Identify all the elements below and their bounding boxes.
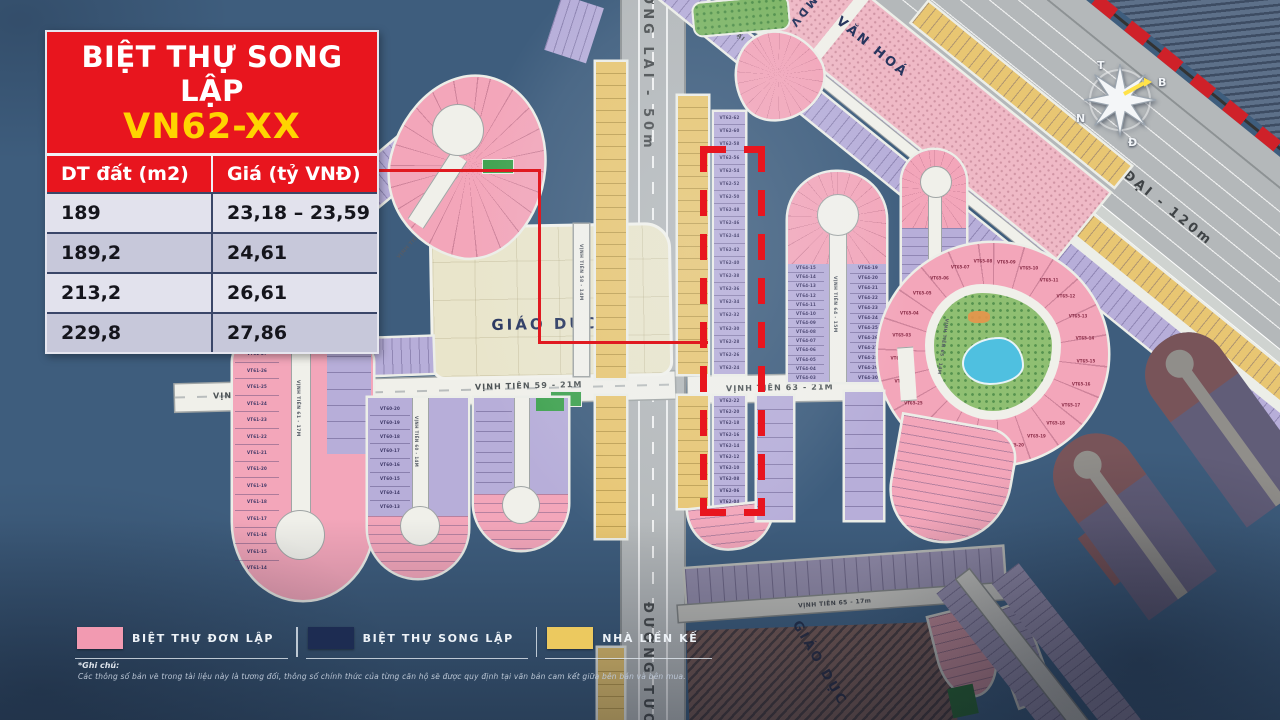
lot-cell [327, 389, 371, 405]
legend-item-song-lap: BIỆT THỰ SONG LẬP [306, 627, 528, 659]
compass-label-south: N [1076, 112, 1085, 125]
lot-cell [845, 420, 883, 434]
lot-strip-p3 [476, 402, 512, 492]
lot-cell: VT62-06 [714, 485, 745, 496]
lot-cell [327, 372, 371, 388]
lot-strip-vt61-crescent: VT61-28VT61-27VT61-26VT61-25VT61-24VT61-… [235, 330, 279, 576]
lot-cell [327, 421, 371, 437]
price-table-header: DT đất (m2) Giá (tỷ VNĐ) [47, 153, 377, 192]
lot-cell: VT62-24 [714, 361, 745, 374]
lot-cell [845, 448, 883, 462]
lot-cell [596, 366, 626, 378]
lot-cell: VT62-34 [714, 295, 745, 308]
highlight-rect-left [700, 146, 707, 516]
lot-cell [845, 463, 883, 477]
lot-cell: VT65-13 [1069, 313, 1088, 318]
lot-cell [596, 329, 626, 341]
lot-cell: VT62-44 [714, 229, 745, 242]
lot-cell [596, 317, 626, 329]
lot-cell: VT64-22 [850, 293, 886, 303]
lot-strip-tl-left-north [596, 62, 626, 378]
lot-cell: VT64-09 [788, 318, 824, 327]
lot-cell [596, 354, 626, 366]
table-row: 189 23,18 – 23,59 [47, 192, 377, 232]
lot-cell: VT64-24 [850, 313, 886, 323]
lot-cell [596, 478, 626, 490]
lot-cell: VT60-17 [370, 443, 410, 457]
lot-cell: VT65-04 [900, 310, 919, 315]
lot-cell: VT62-54 [714, 164, 745, 177]
legend-label: NHÀ LIỀN KẾ [602, 632, 698, 645]
culdesac-bulb-vt66 [920, 166, 952, 198]
highlight-rect-top [700, 146, 765, 153]
lot-cell: VT65-03 [892, 332, 911, 337]
lot-cell: VT64-03 [788, 373, 824, 382]
lot-cell [476, 462, 512, 472]
lot-cell [476, 482, 512, 492]
lot-cell [596, 396, 626, 407]
education-block-south: GIÁO DỤC [686, 621, 958, 720]
cell-price: 23,18 – 23,59 [211, 194, 377, 232]
lot-cell [678, 107, 708, 119]
cell-price: 27,86 [211, 314, 377, 352]
lot-cell: VT65-19 [1027, 434, 1046, 439]
lot-cell: VT62-10 [714, 462, 745, 473]
lot-cell: VT65-10 [1020, 265, 1039, 270]
lot-cell: VT61-19 [235, 477, 279, 493]
lot-cell: VT60-18 [370, 429, 410, 443]
lot-cell: VT62-28 [714, 335, 745, 348]
lot-cell: VT64-07 [788, 336, 824, 345]
lot-cell: VT62-42 [714, 243, 745, 256]
lot-cell: VT62-52 [714, 177, 745, 190]
lot-cell [476, 402, 512, 411]
lot-cell: VT65-07 [951, 264, 970, 269]
lot-cell: VT65-18 [1046, 421, 1065, 426]
lot-cell: VT60-15 [370, 472, 410, 486]
lot-cell: VT62-22 [714, 396, 745, 406]
price-panel: BIỆT THỰ SONG LẬP VN62-XX DT đất (m2) Gi… [45, 30, 379, 354]
lot-cell [327, 405, 371, 421]
lot-cell [476, 441, 512, 451]
lot-cell [678, 118, 708, 130]
lot-cell [596, 219, 626, 231]
road-label-vinh-tien-63: VỊNH TIÊN 63 - 21M [726, 382, 834, 393]
lot-cell [476, 421, 512, 431]
lot-strip-tl-left-south [596, 396, 626, 538]
lot-cell: VT62-12 [714, 451, 745, 462]
legend-label: BIỆT THỰ ĐƠN LẬP [132, 632, 274, 645]
lot-cell: VT64-10 [788, 309, 824, 318]
lot-cell: VT62-14 [714, 440, 745, 451]
lot-cell [845, 392, 883, 405]
lot-cell [596, 232, 626, 244]
price-panel-header: BIỆT THỰ SONG LẬP VN62-XX [47, 32, 377, 153]
legend-swatch-yellow [547, 627, 593, 649]
lot-strip-vt62-south: VT62-22VT62-20VT62-18VT62-16VT62-14VT62-… [714, 396, 745, 518]
lot-cell [598, 708, 624, 720]
lot-cell: VT65-14 [1076, 336, 1095, 341]
lot-cell [596, 419, 626, 431]
lot-cell: VT64-21 [850, 283, 886, 293]
lot-cell: VT64-04 [788, 364, 824, 373]
lot-cell [678, 96, 708, 107]
lot-cell: VT62-08 [714, 473, 745, 484]
culdesac-bulb-vt64 [817, 194, 859, 236]
lot-cell: VT62-20 [714, 406, 745, 417]
lot-cell: VT62-46 [714, 216, 745, 229]
lot-cell: VT65-12 [1057, 293, 1076, 298]
lot-cell: VT65-17 [1062, 403, 1081, 408]
panel-title: BIỆT THỰ SONG LẬP [47, 40, 377, 108]
lot-cell [596, 85, 626, 97]
lot-cell: VT64-13 [788, 281, 824, 290]
lot-cell: VT64-11 [788, 300, 824, 309]
lot-cell [845, 506, 883, 520]
lot-cell: VT64-15 [788, 264, 824, 272]
park-pool [962, 337, 1024, 385]
masterplan-map-screenshot: ĐƯỜNG TƯƠNG LAI - 50m ĐƯỜNG TƯƠNG LAI - … [0, 0, 1280, 720]
lot-cell [596, 134, 626, 146]
road-stem-p3 [514, 398, 530, 494]
table-row: 213,2 26,61 [47, 272, 377, 312]
lot-cell: VT62-32 [714, 308, 745, 321]
lot-cell [845, 477, 883, 491]
lot-cell [596, 293, 626, 305]
footnote-text: Các thông số bản vẽ trong tài liệu này l… [78, 672, 686, 681]
lot-cell: VT65-08 [974, 259, 993, 264]
lot-cell: VT61-15 [235, 543, 279, 559]
footnote: *Ghi chú: Các thông số bản vẽ trong tài … [78, 661, 686, 681]
lot-cell: VT62-38 [714, 269, 745, 282]
culdesac-bulb-vt60 [400, 506, 440, 546]
lot-cell: VT60-19 [370, 415, 410, 429]
legend-label: BIỆT THỰ SONG LẬP [363, 632, 514, 645]
road-label-vinh-tien-61: VỊNH TIÊN 61 - 17M [295, 380, 300, 490]
cell-price: 26,61 [211, 274, 377, 312]
lot-cell: VT62-40 [714, 256, 745, 269]
lot-cell [598, 684, 624, 696]
callout-line-horizontal-1 [376, 169, 540, 172]
lot-cell: VT65-15 [1077, 359, 1096, 364]
col-header-area: DT đất (m2) [47, 156, 211, 192]
compass-label-east: Đ [1128, 136, 1137, 149]
culdesac-bulb-p3 [502, 486, 540, 524]
lot-cell [678, 130, 708, 142]
lot-cell: VT61-17 [235, 510, 279, 526]
cell-area: 189 [47, 194, 211, 232]
lot-cell [596, 146, 626, 158]
lot-cell: VT64-12 [788, 290, 824, 299]
lot-cell [596, 207, 626, 219]
table-row: 189,2 24,61 [47, 232, 377, 272]
lot-cell: VT62-62 [714, 112, 745, 124]
peninsula-vt64: VT64-15VT64-14VT64-13VT64-12VT64-11VT64-… [788, 172, 886, 382]
lot-cell: VT64-20 [850, 273, 886, 283]
lot-cell: VT61-26 [235, 362, 279, 378]
lot-cell [596, 514, 626, 526]
lot-cell [596, 490, 626, 502]
compass-rose: T B N Đ [1072, 52, 1168, 148]
lot-cell: VT64-23 [850, 303, 886, 313]
lot-cell [845, 405, 883, 419]
cell-area: 229,8 [47, 314, 211, 352]
road-label-vinh-tien-65-17: VỊNH TIÊN 65 - 17m [798, 597, 872, 609]
lot-cell: VT61-25 [235, 378, 279, 394]
lot-cell [596, 431, 626, 443]
lot-cell [596, 110, 626, 122]
peninsula-vt60: VT60-20VT60-19VT60-18VT60-17VT60-16VT60-… [368, 398, 468, 578]
lot-cell [327, 438, 371, 454]
lot-cell [596, 268, 626, 280]
lot-cell: VT65-09 [997, 259, 1016, 264]
legend: BIỆT THỰ ĐƠN LẬP BIỆT THỰ SONG LẬP NHÀ L… [75, 627, 712, 659]
lot-cell [596, 305, 626, 317]
lot-strip-s63-b [845, 392, 883, 520]
lot-cell [596, 244, 626, 256]
lot-cell: VT65-05 [913, 291, 932, 296]
road-label-vinh-tien-58: VỊNH TIÊN 58 - 14M [578, 244, 583, 364]
lot-cell: VT65-11 [1040, 277, 1059, 282]
lot-cell [476, 431, 512, 441]
lot-strip-vt60: VT60-20VT60-19VT60-18VT60-17VT60-16VT60-… [370, 402, 410, 514]
highlight-rect-bottom [700, 509, 765, 516]
lot-cell: VT64-14 [788, 272, 824, 281]
lot-cell [596, 195, 626, 207]
legend-item-don-lap: BIỆT THỰ ĐƠN LẬP [75, 627, 288, 659]
lot-cell: VT60-14 [370, 486, 410, 500]
peninsula-3 [474, 398, 568, 550]
lot-cell: VT61-22 [235, 428, 279, 444]
lot-cell [596, 98, 626, 110]
lot-cell: VT64-08 [788, 327, 824, 336]
peninsula-vt61: VT61-28VT61-27VT61-26VT61-25VT61-24VT61-… [233, 322, 373, 600]
lot-cell [596, 256, 626, 268]
cell-area: 189,2 [47, 234, 211, 272]
cell-area: 213,2 [47, 274, 211, 312]
lot-cell: VT62-16 [714, 429, 745, 440]
lot-strip-vt64-left: VT64-15VT64-14VT64-13VT64-12VT64-11VT64-… [788, 264, 824, 382]
lot-cell [596, 171, 626, 183]
lot-cell: VT61-21 [235, 444, 279, 460]
lot-cell [596, 455, 626, 467]
lot-cell: VT62-18 [714, 417, 745, 428]
culdesac-bulb [432, 104, 484, 156]
lot-cell: VT65-16 [1072, 382, 1091, 387]
callout-line-horizontal-2 [538, 341, 708, 344]
lot-cell: VT60-20 [370, 402, 410, 415]
lot-crescent-vt65-south [884, 415, 1019, 551]
lot-cell [596, 73, 626, 85]
lot-cell: VT60-16 [370, 458, 410, 472]
lot-cell: VT62-30 [714, 322, 745, 335]
legend-swatch-pink [77, 627, 123, 649]
lot-cell: VT64-05 [788, 355, 824, 364]
green-lot-3 [536, 398, 564, 411]
lot-cell [596, 62, 626, 73]
culdesac-bulb-vt61 [275, 510, 325, 560]
lot-cell [327, 356, 371, 372]
compass-star-icon [1072, 52, 1168, 148]
lot-cell: VT61-20 [235, 461, 279, 477]
road-label-vinh-tien-60: VỊNH TIÊN 60 - 14M [414, 416, 419, 506]
road-label-vinh-tien-64: VỊNH TIÊN 64 - 15M [832, 276, 837, 376]
highlight-rect-right [758, 146, 765, 516]
lot-cell [596, 526, 626, 538]
legend-separator [536, 627, 538, 657]
lot-cell [596, 122, 626, 134]
road-label-vinh-tien-59b: VỊNH TIÊN 59 - 21M [475, 380, 583, 392]
panel-subtitle: VN62-XX [47, 108, 377, 147]
lot-cell [596, 183, 626, 195]
lot-cell: VT62-26 [714, 348, 745, 361]
lot-cell [596, 407, 626, 419]
lot-cell [596, 467, 626, 479]
lot-cell: VT61-14 [235, 560, 279, 576]
lot-cell: VT61-18 [235, 494, 279, 510]
legend-separator [296, 627, 298, 657]
lot-cell [476, 411, 512, 421]
lot-cell [596, 280, 626, 292]
lot-cell: VT65-06 [930, 275, 949, 280]
lot-cell: VT62-36 [714, 282, 745, 295]
compass-label-north: B [1158, 76, 1166, 89]
lot-cell [596, 502, 626, 514]
compass-label-west: T [1097, 59, 1105, 72]
legend-item-lien-ke: NHÀ LIỀN KẾ [545, 627, 712, 659]
footnote-title: *Ghi chú: [78, 661, 686, 670]
lot-cell: VT62-50 [714, 190, 745, 203]
lot-cell [596, 159, 626, 171]
callout-line-vertical [538, 169, 541, 343]
legend-swatch-navy [308, 627, 354, 649]
lot-cell [845, 434, 883, 448]
lot-cell: VT61-16 [235, 527, 279, 543]
lot-cell [596, 443, 626, 455]
park-playground [968, 311, 990, 323]
lot-cell: VT64-19 [850, 264, 886, 273]
col-header-price: Giá (tỷ VNĐ) [211, 156, 377, 192]
lot-cell: VT62-60 [714, 124, 745, 137]
lot-cell [476, 452, 512, 462]
area-label-giao-duc-south: GIÁO DỤC [789, 618, 850, 709]
lot-cell: VT61-23 [235, 411, 279, 427]
lot-cell [845, 491, 883, 505]
lot-cell: VT62-48 [714, 203, 745, 216]
lot-cell [598, 696, 624, 708]
lot-cell: VT64-06 [788, 345, 824, 354]
lot-cell: VT61-24 [235, 395, 279, 411]
lot-cell [476, 472, 512, 482]
table-row: 229,8 27,86 [47, 312, 377, 352]
cell-price: 24,61 [211, 234, 377, 272]
